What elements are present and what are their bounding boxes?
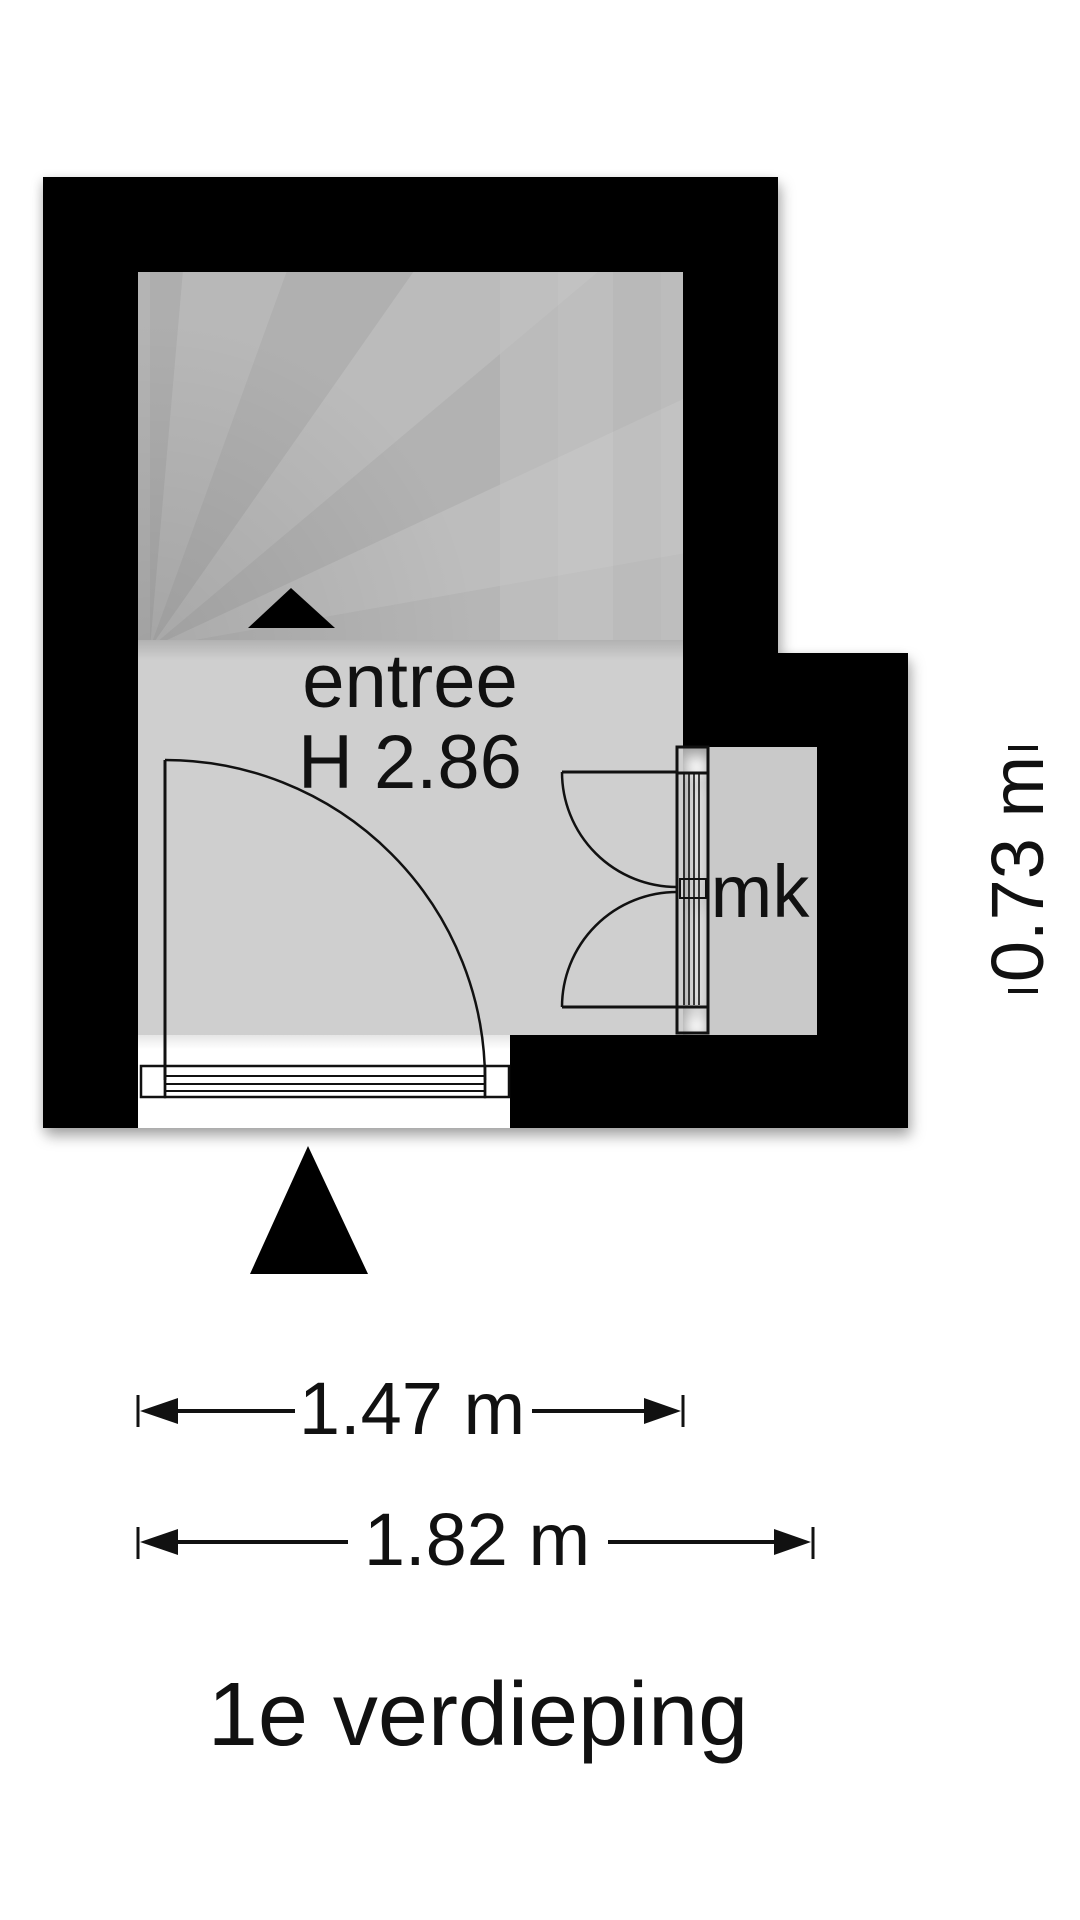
wall-left [43, 177, 138, 1128]
dimension-label-outer-width: 1.82 m [364, 1498, 590, 1581]
dimension-arrow-left-icon [140, 1398, 178, 1424]
stair-shading [138, 272, 683, 640]
dimension-label-inner-width: 1.47 m [299, 1367, 525, 1450]
dimension-arrow-left-icon [140, 1529, 178, 1555]
entrance-arrow-icon [250, 1146, 368, 1274]
dimension-label-side-height: 0.73 m [976, 756, 1059, 982]
threshold-shading [138, 1035, 510, 1049]
dimension-arrow-right-icon [774, 1529, 811, 1555]
floorplan-canvas: entree H 2.86 mk 1.47 m 1.82 m 0.73 m 1e… [0, 0, 1080, 1920]
floorplan-page: entree H 2.86 mk 1.47 m 1.82 m 0.73 m 1e… [0, 0, 1080, 1920]
dimension-outer-width: 1.82 m [138, 1498, 813, 1581]
closet-label-mk: mk [711, 850, 811, 933]
dimension-arrow-right-icon [644, 1398, 681, 1424]
wall-bottom-left [43, 1035, 138, 1128]
ceiling-height-label: H 2.86 [298, 720, 522, 805]
wall-top [43, 177, 778, 272]
floor-title: 1e verdieping [208, 1665, 748, 1765]
room-label-entree: entree [302, 639, 518, 724]
wall-bottom-right [510, 1035, 908, 1128]
dimension-side-height: 0.73 m [976, 748, 1059, 991]
floorplan-body [43, 0, 908, 1128]
dimension-inner-width: 1.47 m [138, 1367, 683, 1450]
